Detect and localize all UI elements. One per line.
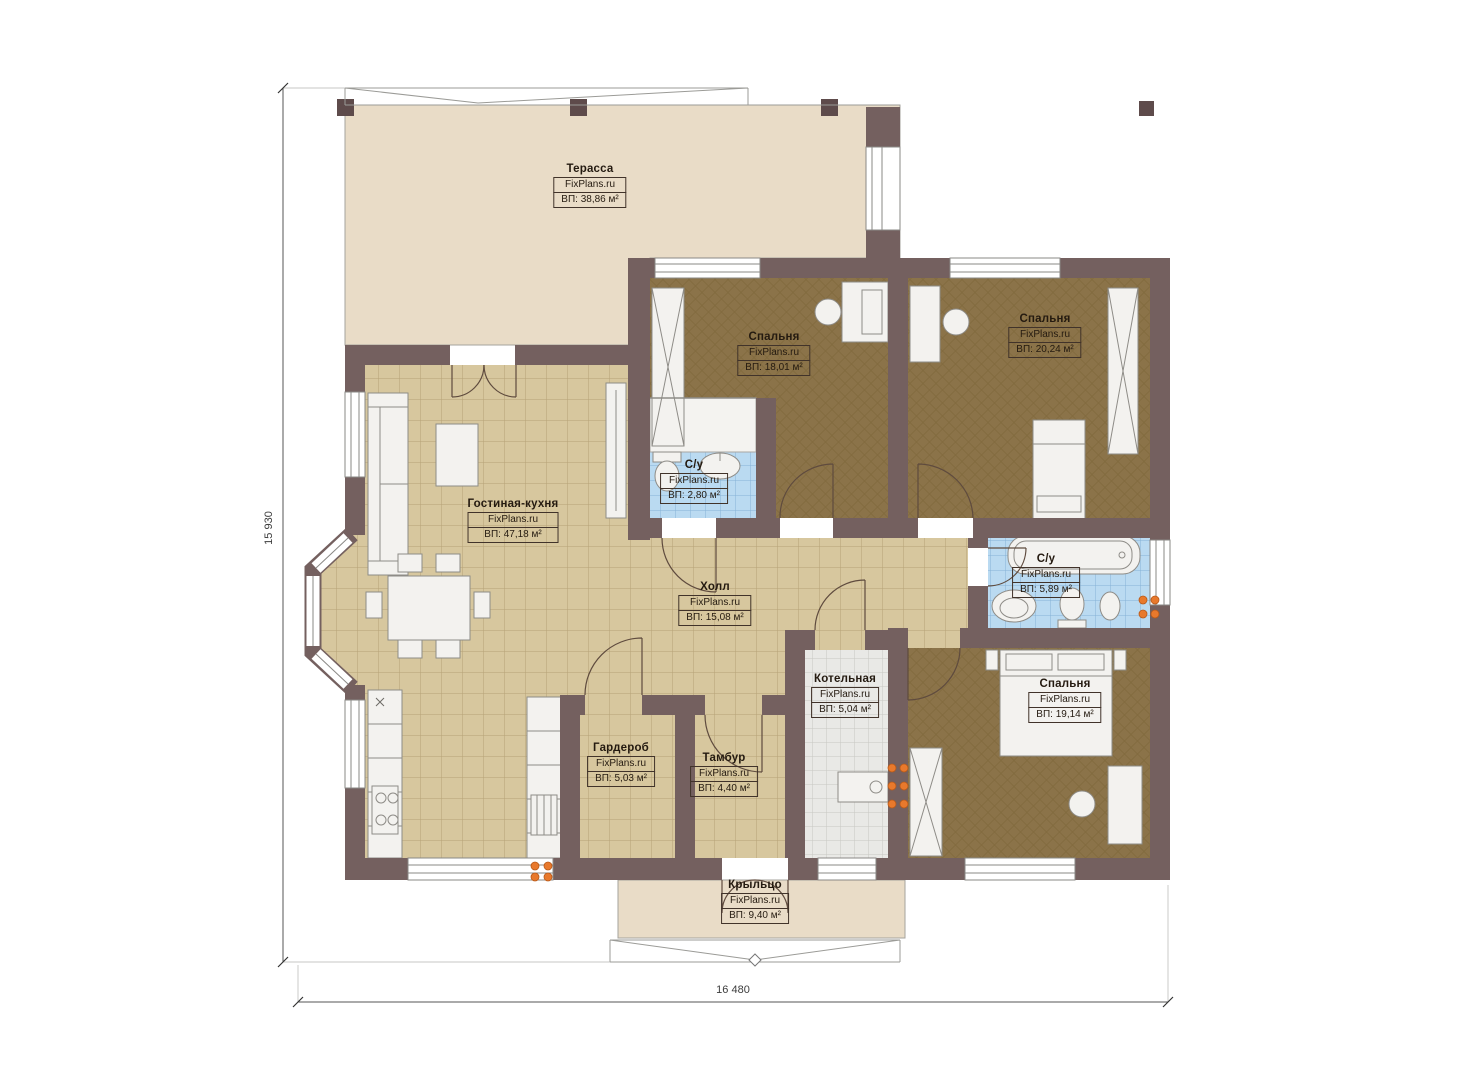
bathroom2-toilet — [1058, 588, 1086, 628]
bathroom1-sink — [700, 453, 740, 479]
coffee-table — [436, 424, 478, 486]
bathroom1-toilet — [653, 452, 681, 491]
bedroom1-wardrobe — [652, 288, 684, 446]
bedroom3-bed — [986, 650, 1126, 756]
boiler-unit — [838, 772, 888, 802]
porch-floor — [618, 880, 905, 938]
floor-plan-drawing: 15 930 16 480 — [0, 0, 1474, 1080]
roof-overhang-top — [345, 88, 900, 105]
sofa — [368, 393, 408, 575]
bathtub — [1008, 536, 1140, 574]
bedroom2-wardrobe — [1108, 288, 1138, 454]
bedroom2-bed — [1033, 420, 1085, 528]
kitchen-counter-left — [368, 690, 402, 858]
dimension-width-label: 16 480 — [716, 984, 750, 996]
bedroom3-wardrobe — [910, 748, 942, 856]
kitchen-counter-island — [527, 697, 561, 858]
tv-unit — [606, 383, 626, 518]
bathroom2-bidet — [1100, 592, 1120, 620]
bathroom2-sink — [992, 590, 1036, 622]
boiler-floor — [805, 650, 888, 858]
floor-plan-page: 15 930 16 480 Терасса FixPlans.ru ВП: 38… — [0, 0, 1474, 1080]
porch-roof — [610, 940, 900, 966]
dimension-height-label: 15 930 — [263, 511, 275, 545]
